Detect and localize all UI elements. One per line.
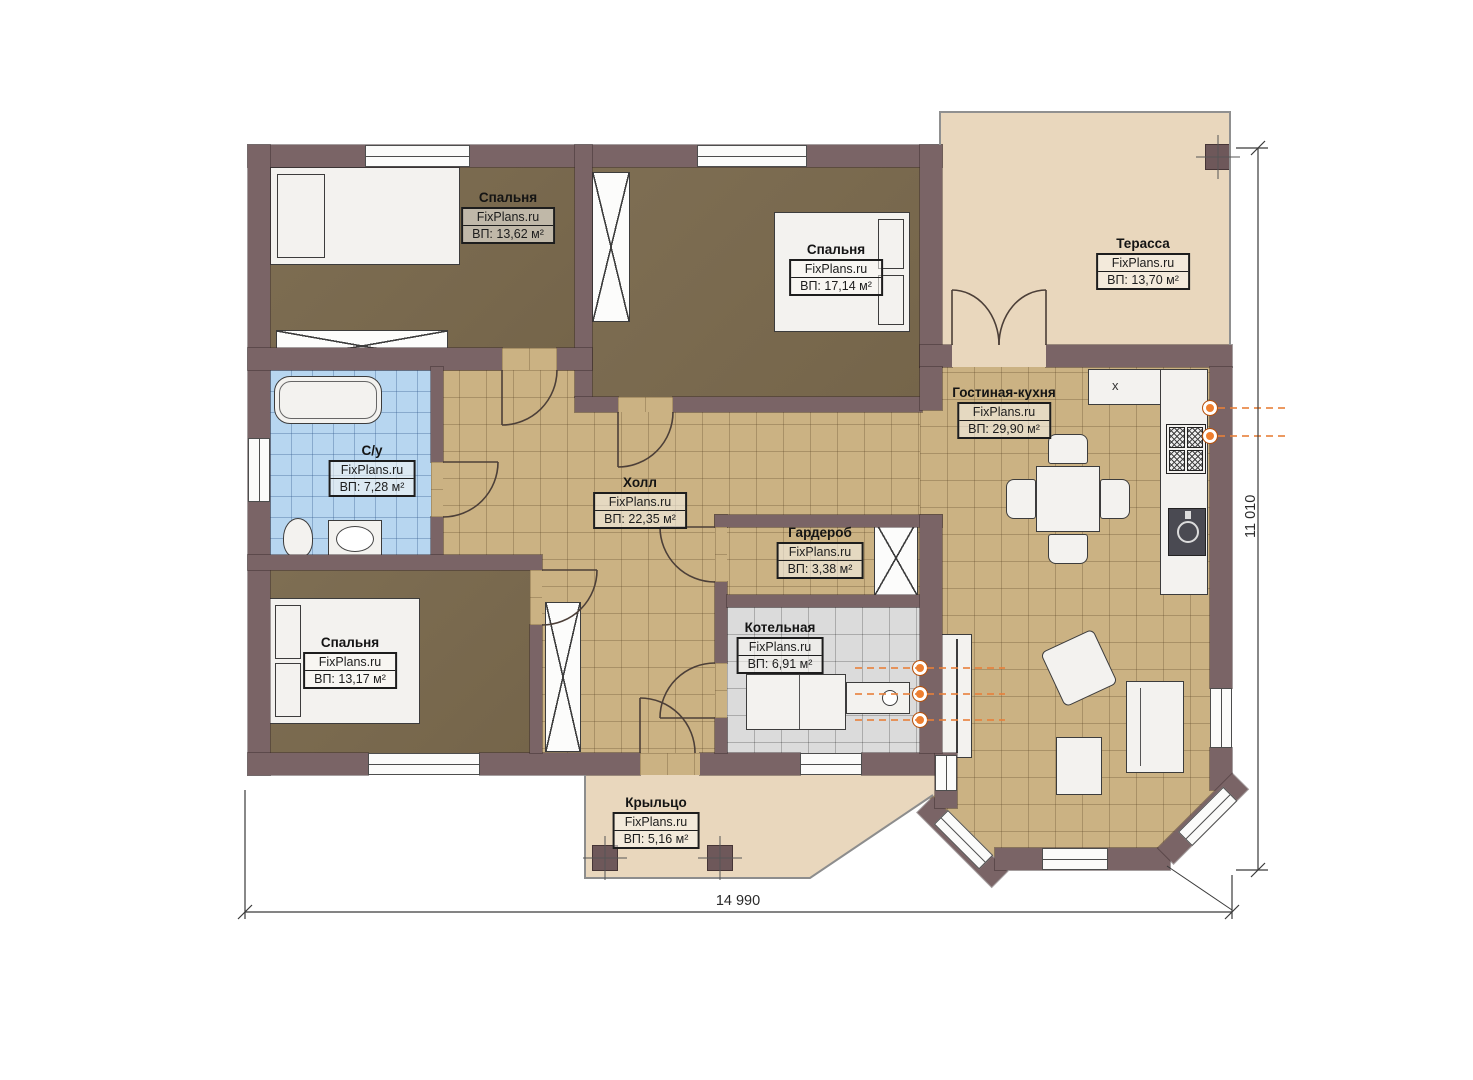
room-area: ВП: 3,38 м² bbox=[779, 561, 862, 577]
terrace-floor bbox=[940, 112, 1230, 345]
heating-valve-icon bbox=[912, 712, 928, 728]
wall bbox=[920, 345, 952, 367]
wall bbox=[715, 582, 727, 663]
heating-valve-icon bbox=[1202, 400, 1218, 416]
door-opening bbox=[502, 348, 557, 370]
room-info-box: FixPlans.ru ВП: 5,16 м² bbox=[613, 812, 700, 849]
wardrobe-cabinet bbox=[874, 520, 918, 596]
brand-text: FixPlans.ru bbox=[305, 654, 395, 671]
room-label-hall: Холл FixPlans.ru ВП: 22,35 м² bbox=[593, 475, 687, 529]
brand-text: FixPlans.ru bbox=[331, 462, 414, 479]
room-label-boiler: Котельная FixPlans.ru ВП: 6,91 м² bbox=[737, 620, 824, 674]
pillow bbox=[275, 605, 301, 659]
door-opening bbox=[618, 397, 673, 412]
room-label-bedroom3: Спальня FixPlans.ru ВП: 13,17 м² bbox=[303, 635, 397, 689]
room-area: ВП: 22,35 м² bbox=[595, 511, 685, 527]
floor-plan-canvas: x bbox=[0, 0, 1473, 1080]
room-title: Спальня bbox=[461, 190, 555, 205]
window bbox=[697, 145, 807, 167]
burner-icon bbox=[1169, 427, 1185, 448]
wardrobe-cabinet bbox=[592, 172, 630, 322]
dining-chair bbox=[1100, 479, 1130, 519]
wall bbox=[715, 718, 727, 753]
room-area: ВП: 13,17 м² bbox=[305, 671, 395, 687]
brand-text: FixPlans.ru bbox=[791, 261, 881, 278]
room-area: ВП: 29,90 м² bbox=[959, 421, 1049, 437]
entrance-door-opening bbox=[640, 753, 700, 775]
washbasin-bowl bbox=[336, 526, 374, 552]
heating-valve-icon bbox=[912, 686, 928, 702]
room-info-box: FixPlans.ru ВП: 3,38 м² bbox=[777, 542, 864, 579]
terrace-door-opening bbox=[952, 345, 1046, 367]
porch-column bbox=[707, 845, 733, 871]
room-area: ВП: 17,14 м² bbox=[791, 278, 881, 294]
heating-valve-icon bbox=[1202, 428, 1218, 444]
room-title: Гардероб bbox=[777, 525, 864, 540]
faucet-icon bbox=[1185, 511, 1191, 519]
window bbox=[368, 753, 480, 775]
room-info-box: FixPlans.ru ВП: 22,35 м² bbox=[593, 492, 687, 529]
kitchen-counter-top bbox=[1088, 369, 1164, 405]
dining-chair bbox=[1006, 479, 1036, 519]
dimension-height-label: 11 010 bbox=[1243, 495, 1259, 538]
window bbox=[365, 145, 470, 167]
brand-text: FixPlans.ru bbox=[959, 404, 1049, 421]
bay-window bbox=[1042, 848, 1108, 870]
boiler-unit bbox=[746, 674, 846, 730]
brand-text: FixPlans.ru bbox=[739, 639, 822, 656]
room-info-box: FixPlans.ru ВП: 13,17 м² bbox=[303, 652, 397, 689]
bathtub bbox=[274, 376, 382, 424]
door-opening bbox=[715, 663, 727, 718]
window bbox=[1210, 688, 1232, 748]
cabinet-x-mark: x bbox=[1112, 378, 1119, 393]
room-info-box: FixPlans.ru ВП: 29,90 м² bbox=[957, 402, 1051, 439]
room-info-box: FixPlans.ru ВП: 6,91 м² bbox=[737, 637, 824, 674]
wall bbox=[920, 367, 942, 410]
room-info-box: FixPlans.ru ВП: 13,70 м² bbox=[1096, 253, 1190, 290]
brand-text: FixPlans.ru bbox=[779, 544, 862, 561]
wall bbox=[575, 397, 618, 412]
pillow bbox=[277, 174, 325, 258]
brand-text: FixPlans.ru bbox=[1098, 255, 1188, 272]
sink-bowl bbox=[1177, 521, 1199, 543]
room-area: ВП: 7,28 м² bbox=[331, 479, 414, 495]
burner-icon bbox=[1187, 427, 1203, 448]
pillow bbox=[275, 663, 301, 717]
wall bbox=[431, 517, 443, 558]
room-label-terrace: Терасса FixPlans.ru ВП: 13,70 м² bbox=[1096, 236, 1190, 290]
room-title: Терасса bbox=[1096, 236, 1190, 251]
door-opening bbox=[530, 570, 542, 625]
brand-text: FixPlans.ru bbox=[615, 814, 698, 831]
window bbox=[248, 438, 270, 502]
wall bbox=[248, 753, 368, 775]
door-opening bbox=[715, 527, 727, 582]
room-area: ВП: 13,70 м² bbox=[1098, 272, 1188, 288]
wall bbox=[248, 145, 942, 167]
room-title: Спальня bbox=[303, 635, 397, 650]
room-title: С/у bbox=[329, 443, 416, 458]
dining-table bbox=[1036, 466, 1100, 532]
coffee-table bbox=[1056, 737, 1102, 795]
wardrobe-cabinet bbox=[545, 602, 581, 752]
burner-icon bbox=[1169, 450, 1185, 471]
pump-unit bbox=[846, 682, 910, 714]
tv-cabinet bbox=[940, 634, 972, 758]
room-label-living-kitchen: Гостиная-кухня FixPlans.ru ВП: 29,90 м² bbox=[952, 385, 1055, 439]
room-title: Крыльцо bbox=[613, 795, 700, 810]
wall bbox=[248, 348, 502, 370]
wall bbox=[700, 753, 800, 775]
room-label-bedroom2: Спальня FixPlans.ru ВП: 17,14 м² bbox=[789, 242, 883, 296]
window bbox=[800, 753, 862, 775]
room-label-wardrobe: Гардероб FixPlans.ru ВП: 3,38 м² bbox=[777, 525, 864, 579]
heating-valve-icon bbox=[912, 660, 928, 676]
wall bbox=[480, 753, 640, 775]
terrace-column bbox=[1205, 144, 1231, 170]
wall bbox=[248, 555, 542, 570]
stove-cooktop bbox=[1166, 424, 1206, 474]
room-info-box: FixPlans.ru ВП: 17,14 м² bbox=[789, 259, 883, 296]
room-title: Холл bbox=[593, 475, 687, 490]
wall bbox=[727, 595, 935, 607]
kitchen-counter-right bbox=[1160, 369, 1208, 595]
room-area: ВП: 6,91 м² bbox=[739, 656, 822, 672]
toilet bbox=[283, 518, 313, 558]
room-title: Котельная bbox=[737, 620, 824, 635]
dining-chair bbox=[1048, 534, 1088, 564]
room-label-bathroom: С/у FixPlans.ru ВП: 7,28 м² bbox=[329, 443, 416, 497]
room-title: Спальня bbox=[789, 242, 883, 257]
kitchen-sink bbox=[1168, 508, 1206, 556]
wall bbox=[920, 145, 942, 367]
room-title: Гостиная-кухня bbox=[952, 385, 1055, 400]
room-info-box: FixPlans.ru ВП: 7,28 м² bbox=[329, 460, 416, 497]
brand-text: FixPlans.ru bbox=[595, 494, 685, 511]
room-area: ВП: 13,62 м² bbox=[463, 226, 553, 242]
window bbox=[935, 755, 957, 791]
dimension-width-label: 14 990 bbox=[716, 893, 760, 909]
wall bbox=[431, 367, 443, 462]
room-area: ВП: 5,16 м² bbox=[615, 831, 698, 847]
wall bbox=[673, 397, 922, 412]
wall bbox=[557, 348, 592, 370]
wall bbox=[1046, 345, 1232, 367]
burner-icon bbox=[1187, 450, 1203, 471]
room-label-bedroom1: Спальня FixPlans.ru ВП: 13,62 м² bbox=[461, 190, 555, 244]
door-opening bbox=[431, 462, 443, 517]
wall bbox=[862, 753, 935, 775]
room-label-porch: Крыльцо FixPlans.ru ВП: 5,16 м² bbox=[613, 795, 700, 849]
wall bbox=[530, 625, 542, 753]
pump-dial bbox=[882, 690, 898, 706]
sofa bbox=[1126, 681, 1184, 773]
brand-text: FixPlans.ru bbox=[463, 209, 553, 226]
room-info-box: FixPlans.ru ВП: 13,62 м² bbox=[461, 207, 555, 244]
